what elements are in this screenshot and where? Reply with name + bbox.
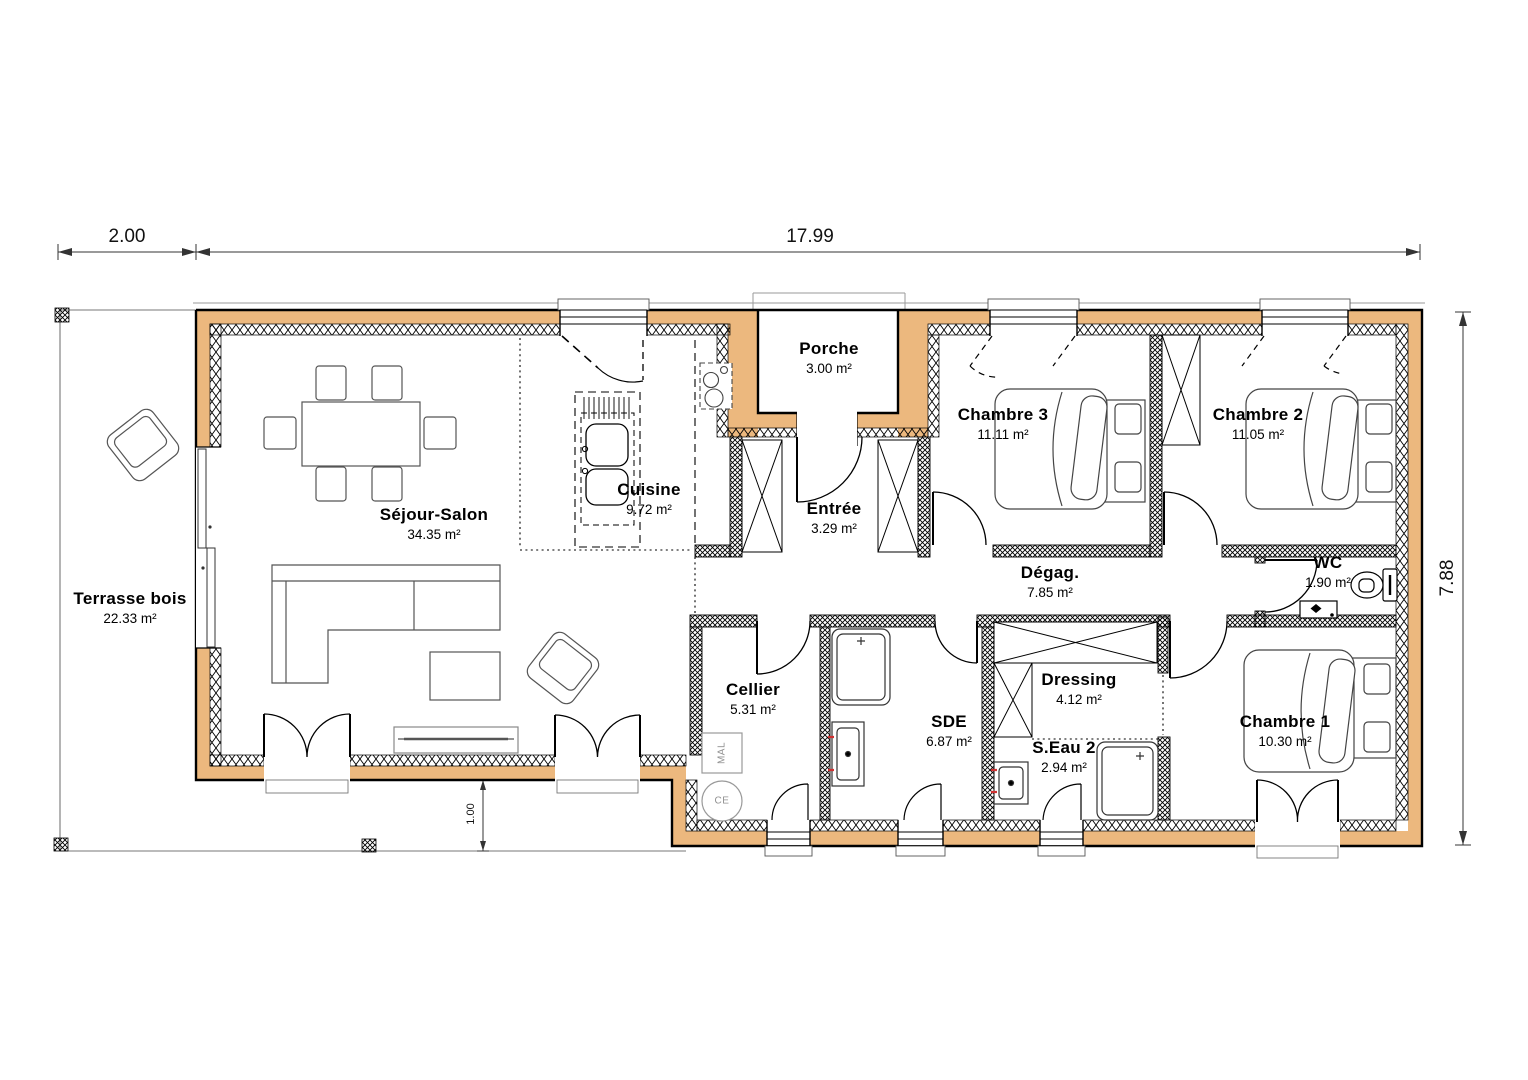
casement-window-swings [772,784,1081,820]
room-name: Chambre 1 [1240,711,1331,733]
french-door-sejour-right [555,715,640,757]
room-name: Porche [799,338,858,360]
room-name: Cuisine [617,479,681,501]
window-sde [896,820,945,856]
door-thresholds [264,413,1340,858]
label-degag: Dégag. 7.85 m² [1021,562,1079,602]
closet-entree-left [742,440,782,552]
room-name: Cellier [726,679,780,701]
closet-entree-right [878,440,918,552]
kitchen-door-swing [562,336,643,382]
dimension-total-width: 17.99 [786,226,834,248]
room-name: Dressing [1041,669,1116,691]
toilet [1351,569,1397,601]
label-chambre3: Chambre 3 11.11 m² [958,404,1049,444]
cooktop [700,363,732,409]
room-name: Entrée [807,498,862,520]
tv-stand [394,727,518,753]
door-cellier [757,621,810,674]
dining-table [264,366,456,501]
door-chambre1 [1170,621,1227,678]
label-terrasse: Terrasse bois 22.33 m² [73,588,186,628]
room-area: 3.29 m² [807,520,862,538]
window-chambre3 [988,299,1079,336]
room-name: Chambre 3 [958,404,1049,426]
coffee-table [430,652,500,700]
water-heater-label: CE [715,796,730,807]
label-wc: WC 1.90 m² [1305,552,1351,592]
closet-dressing-left [994,663,1032,737]
label-seau2: S.Eau 2 2.94 m² [1032,737,1096,777]
room-name: Séjour-Salon [380,504,488,526]
room-name: Dégag. [1021,562,1079,584]
label-entree: Entrée 3.29 m² [807,498,862,538]
shower-sde [832,629,890,705]
room-area: 34.35 m² [380,526,488,544]
vanity-sde [828,722,864,786]
door-sde [935,621,977,663]
room-area: 10.30 m² [1240,733,1331,751]
room-name: Chambre 2 [1213,404,1304,426]
label-cuisine: Cuisine 9.72 m² [617,479,681,519]
room-area: 11.11 m² [958,426,1049,444]
washing-machine-label: MAL [717,742,728,764]
door-chambre3 [933,492,986,545]
room-name: WC [1305,552,1351,574]
bay-window [196,447,221,648]
room-area: 7.85 m² [1021,584,1079,602]
dimension-terrace-depth: 1.00 [465,803,477,824]
floor-plan: Terrasse bois 22.33 m² Séjour-Salon 34.3… [0,0,1528,1080]
label-chambre2: Chambre 2 11.05 m² [1213,404,1304,444]
room-area: 1.90 m² [1305,574,1351,592]
window-seau2 [1038,820,1085,856]
armchair-sejour [524,629,603,708]
room-area: 5.31 m² [726,701,780,719]
label-sejour: Séjour-Salon 34.35 m² [380,504,488,544]
room-name: S.Eau 2 [1032,737,1096,759]
roof-overhang-lines [193,293,1425,310]
armchair-terrasse [104,406,183,485]
floor-plan-drawing [0,0,1528,1080]
wc-basin [1300,601,1337,618]
shower-seau2 [1097,742,1158,820]
door-chambre2 [1164,492,1217,545]
closet-chambres [1162,335,1200,445]
room-area: 2.94 m² [1032,759,1096,777]
window-cellier [765,820,812,856]
window-chambre2 [1260,299,1350,336]
room-area: 4.12 m² [1041,691,1116,709]
front-door [797,437,862,502]
closet-dressing-top [994,622,1157,663]
vanity-seau2 [991,762,1028,804]
room-area: 3.00 m² [799,360,858,378]
room-area: 22.33 m² [73,610,186,628]
french-door-chambre1 [1257,780,1338,822]
room-name: SDE [926,711,972,733]
room-area: 9.72 m² [617,501,681,519]
french-door-sejour-left [264,714,350,757]
label-chambre1: Chambre 1 10.30 m² [1240,711,1331,751]
room-area: 6.87 m² [926,733,972,751]
room-area: 11.05 m² [1213,426,1304,444]
label-cellier: Cellier 5.31 m² [726,679,780,719]
dimension-total-height: 7.88 [1437,560,1459,597]
room-name: Terrasse bois [73,588,186,610]
window-cuisine [558,299,649,336]
label-porche: Porche 3.00 m² [799,338,858,378]
label-dressing: Dressing 4.12 m² [1041,669,1116,709]
label-sde: SDE 6.87 m² [926,711,972,751]
dimension-left-offset: 2.00 [109,226,146,248]
